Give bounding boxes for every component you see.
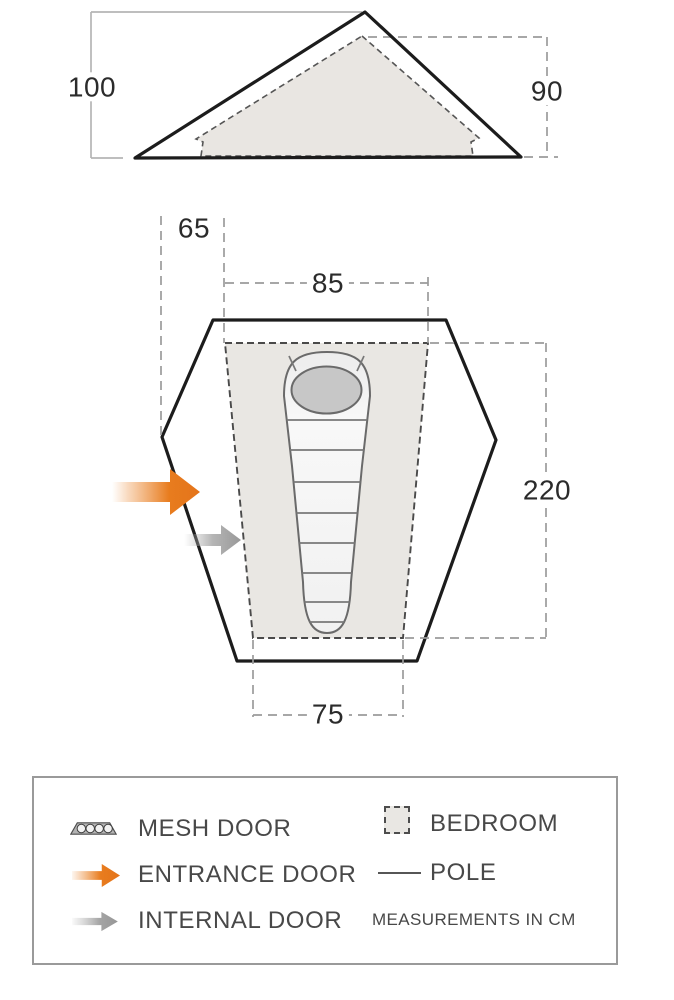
legend-label-bedroom: BEDROOM [430,810,558,838]
bedroom-elevation-area [196,36,479,156]
legend-label-entrance-door: ENTRANCE DOOR [138,861,356,889]
legend-label-pole: POLE [430,859,496,887]
dimension-bedroom-length: 220 [518,475,576,504]
dimension-bedroom-width-head: 85 [307,268,349,297]
diagram-canvas [0,0,674,770]
legend-label-mesh-door: MESH DOOR [138,815,291,843]
entrance-door-icon [72,863,120,888]
legend-label-internal-door: INTERNAL DOOR [138,907,342,935]
legend-note-units: MEASUREMENTS IN CM [372,910,576,930]
tent-dimensions-diagram: 100 90 65 85 220 75 MESH DOOR ENTRANCE D… [0,0,674,1000]
dimension-outer-height: 100 [63,72,121,101]
side-elevation-view [91,12,558,158]
dimension-inner-height: 90 [526,76,568,105]
bedroom-icon [384,806,410,834]
mesh-door-icon [70,821,117,836]
pole-icon [378,872,421,874]
internal-door-icon [72,911,118,932]
sleeping-bag-hood-opening [292,367,362,414]
dimension-porch-depth: 65 [173,213,215,242]
dimension-bedroom-width-foot: 75 [307,699,349,728]
legend-box: MESH DOOR ENTRANCE DOOR IN [32,776,618,965]
